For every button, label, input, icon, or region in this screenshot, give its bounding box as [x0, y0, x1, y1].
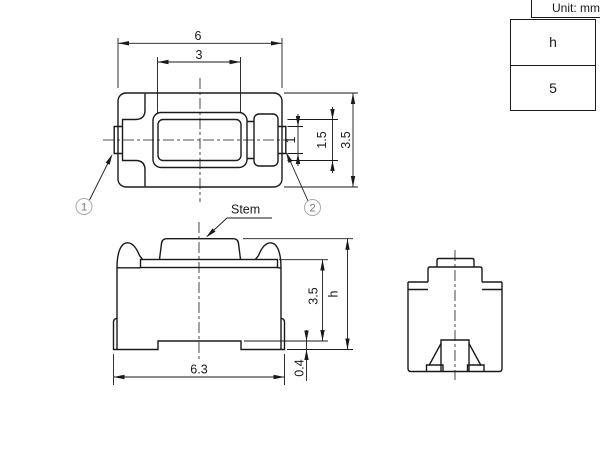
front-view-stem	[160, 239, 241, 260]
spec-table-value-cell: 5	[511, 66, 595, 111]
dim-text-contact-width: 1.5	[315, 131, 329, 148]
dim-top-terminal-width: 1	[284, 114, 303, 166]
callout-2-number: 2	[309, 203, 315, 215]
front-view-cover-plate	[141, 260, 278, 268]
dim-text-terminal-span: 6.3	[190, 363, 207, 377]
stem-label: Stem	[231, 203, 260, 217]
side-view-stem	[437, 259, 474, 268]
dim-text-body-height: 3.5	[307, 287, 321, 304]
unit-label: Unit: mm	[552, 1, 600, 15]
stem-callout: Stem	[206, 203, 272, 238]
spec-parameter: h	[549, 34, 557, 50]
dim-text-stem-width: 3	[196, 48, 203, 62]
dim-top-stem-width: 3	[158, 48, 241, 113]
dim-text-body-depth: 3.5	[339, 131, 353, 148]
callout-terminal-1: 1	[76, 154, 113, 215]
spec-table-parameter-cell: h	[511, 20, 595, 66]
spec-table: h 5	[510, 19, 596, 111]
dim-front-overall-height: h	[243, 239, 353, 350]
technical-drawing-page: 6 3 1 1.5	[0, 0, 600, 450]
dim-text-standoff-height: 0.4	[293, 359, 307, 376]
dim-text-overall-height: h	[327, 290, 341, 297]
callout-1-number: 1	[81, 202, 87, 214]
dim-front-standoff-height: 0.4	[244, 330, 353, 381]
side-view	[408, 250, 502, 380]
spec-value: 5	[549, 80, 557, 96]
front-view-left-side	[117, 243, 143, 350]
dim-text-body-width: 6	[195, 29, 202, 43]
dim-text-terminal-width: 1	[284, 136, 298, 143]
top-view: 6 3 1 1.5	[76, 29, 358, 216]
unit-label-box: Unit: mm	[531, 0, 600, 18]
front-view: Stem 6.3	[114, 203, 354, 386]
dim-front-body-height: 3.5	[279, 260, 328, 342]
callout-terminal-2: 2	[286, 152, 321, 216]
